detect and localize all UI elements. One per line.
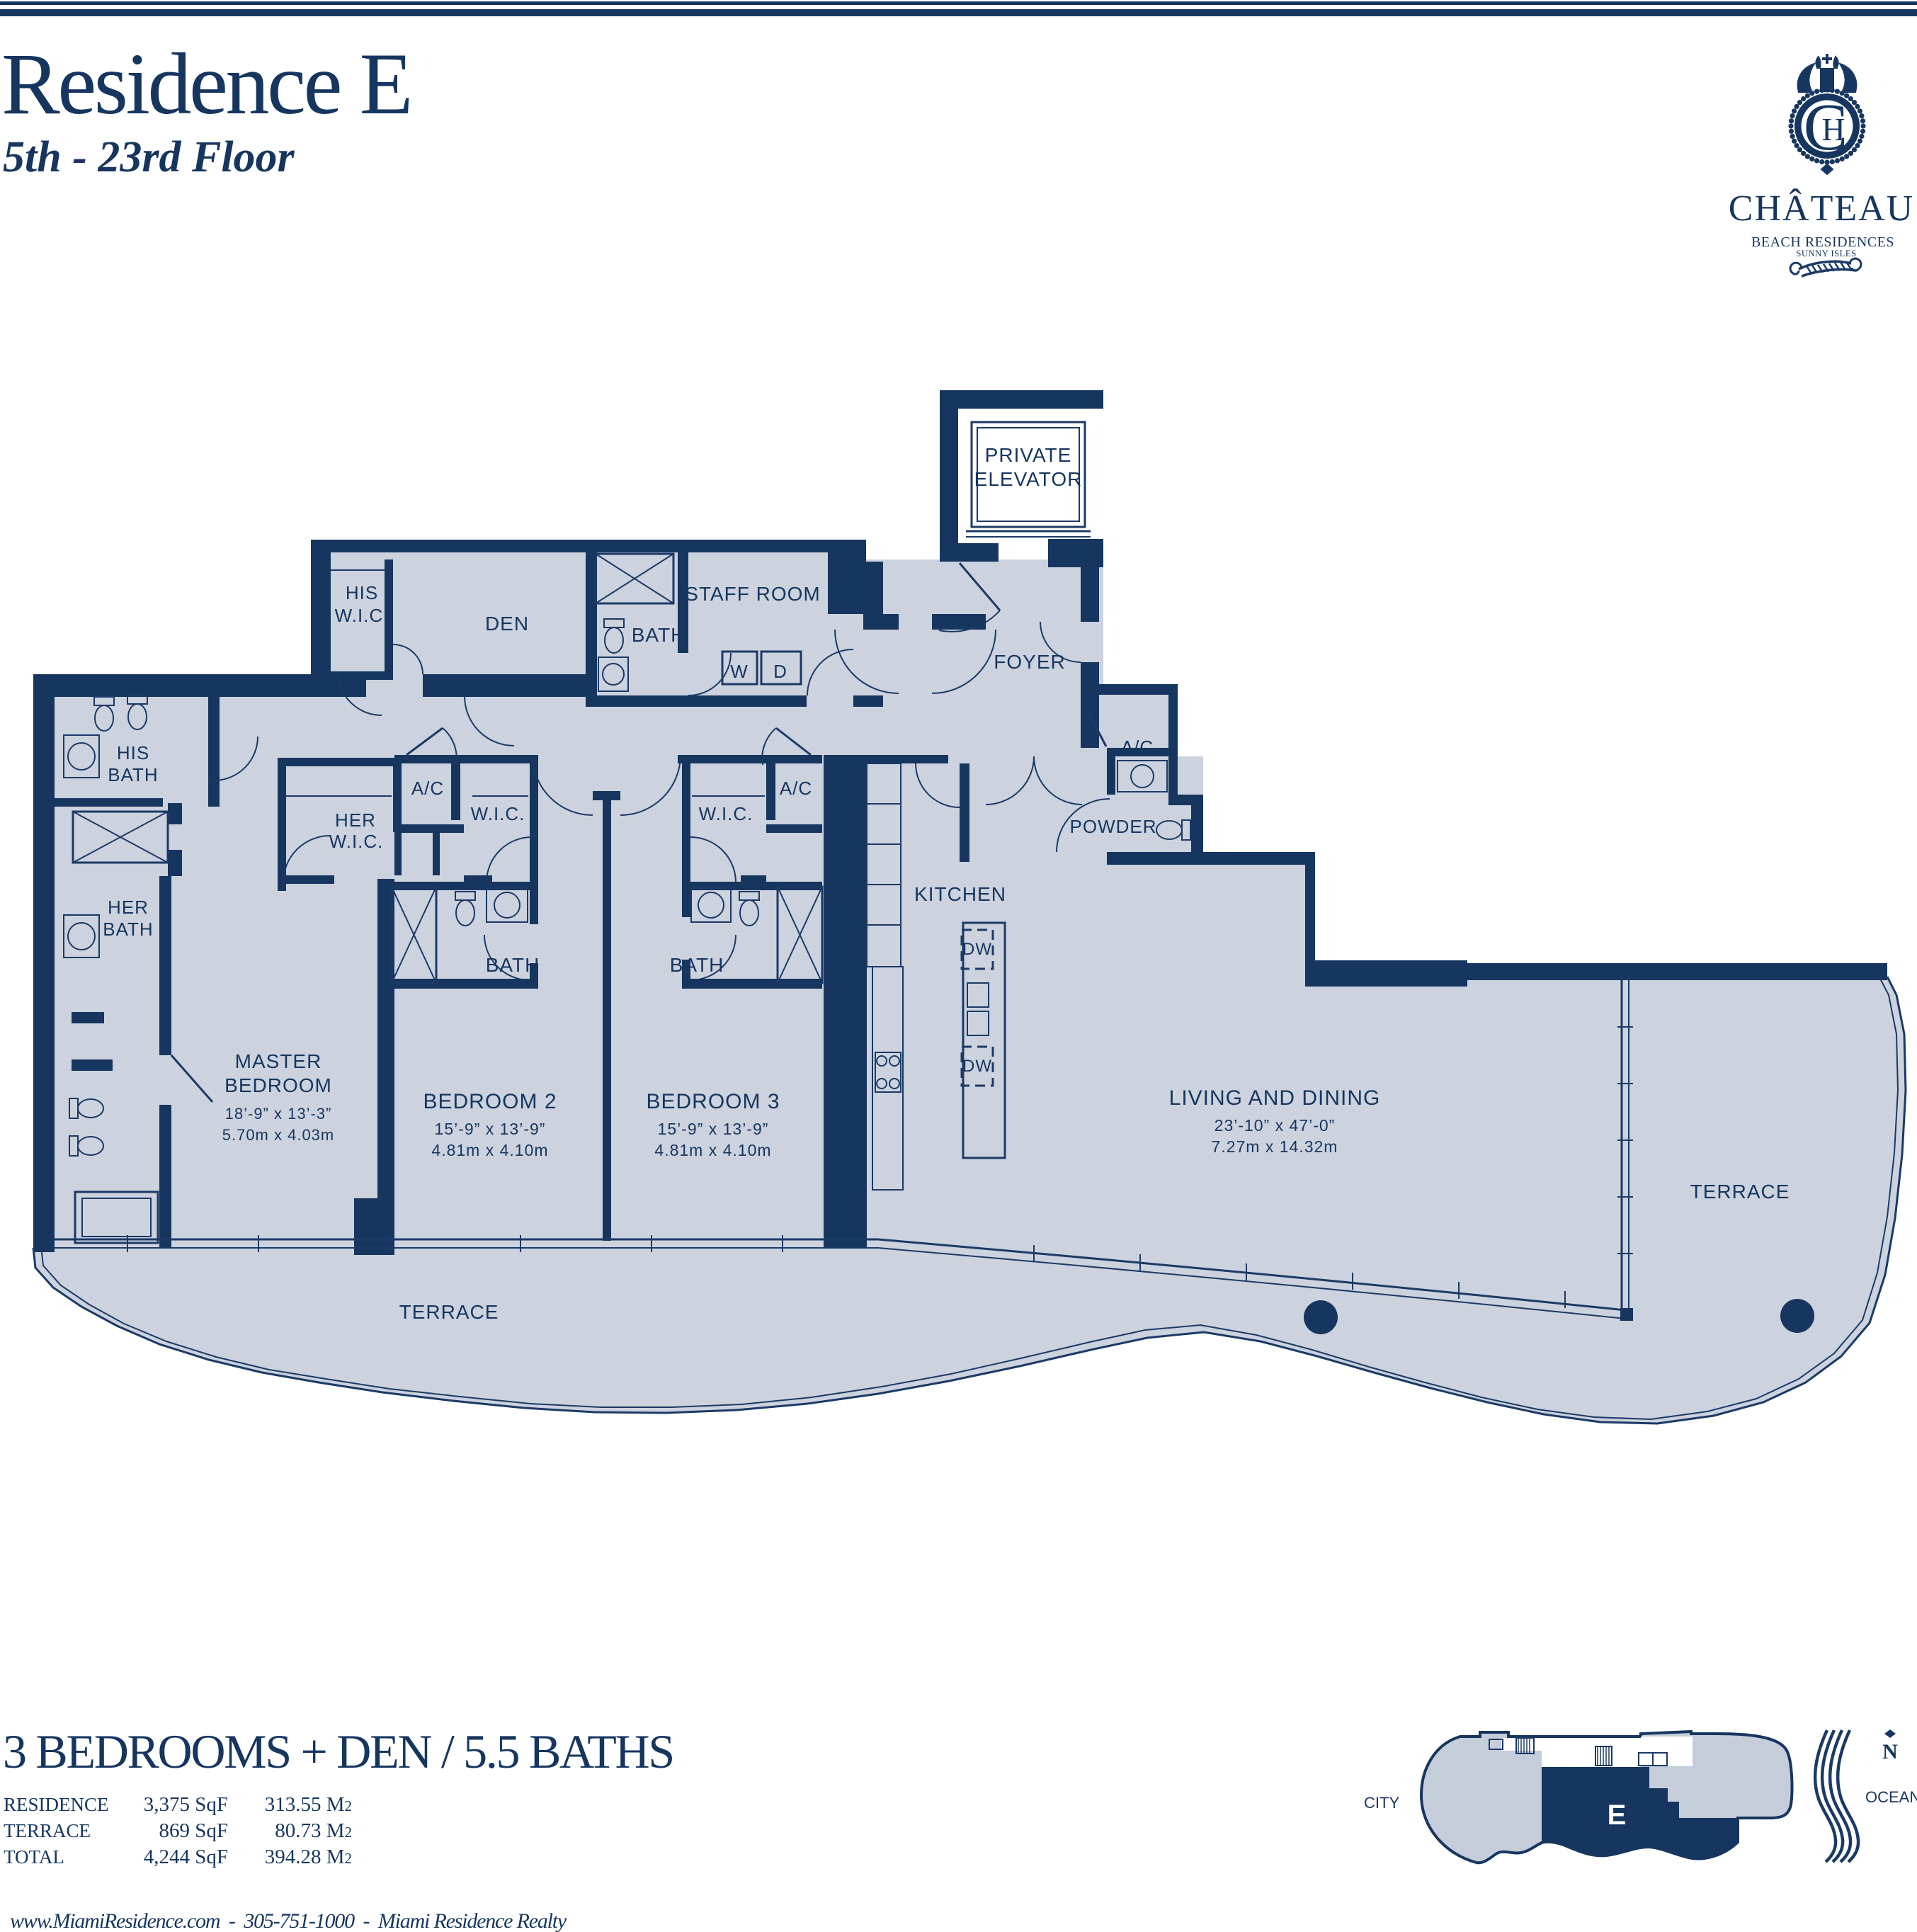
svg-text:W.I.C.: W.I.C.: [335, 605, 389, 626]
svg-text:394.28 M2: 394.28 M2: [265, 1846, 352, 1868]
svg-text:DW: DW: [962, 1057, 992, 1076]
svg-text:A/C: A/C: [780, 778, 812, 799]
svg-text:BEACH RESIDENCES: BEACH RESIDENCES: [1751, 234, 1894, 250]
svg-text:15’-9” x 13’-9”: 15’-9” x 13’-9”: [658, 1120, 769, 1138]
svg-text:PRIVATE: PRIVATE: [985, 444, 1072, 466]
svg-text:18’-9” x 13’-3”: 18’-9” x 13’-3”: [225, 1105, 332, 1123]
svg-text:CHÂTEAU: CHÂTEAU: [1729, 188, 1914, 229]
svg-text:5.70m x 4.03m: 5.70m x 4.03m: [222, 1126, 335, 1144]
svg-text:FOYER: FOYER: [994, 651, 1065, 673]
svg-text:313.55 M2: 313.55 M2: [265, 1793, 352, 1816]
svg-text:POWDER: POWDER: [1070, 816, 1157, 837]
svg-text:5th - 23rd Floor: 5th - 23rd Floor: [3, 133, 295, 181]
svg-text:BEDROOM 3: BEDROOM 3: [646, 1090, 780, 1113]
svg-text:W.I.C.: W.I.C.: [329, 831, 384, 852]
svg-text:Residence E: Residence E: [1, 35, 411, 132]
svg-text:BATH: BATH: [670, 954, 724, 976]
svg-text:N: N: [1882, 1740, 1898, 1763]
svg-text:www.MiamiResidence.com - 305: www.MiamiResidence.com - 305-751-1000 - …: [10, 1909, 567, 1932]
svg-text:A/C: A/C: [1121, 737, 1154, 758]
svg-text:W.I.C.: W.I.C.: [699, 803, 753, 824]
svg-text:TERRACE: TERRACE: [1690, 1181, 1790, 1203]
svg-text:80.73 M2: 80.73 M2: [275, 1819, 352, 1842]
svg-text:7.27m x 14.32m: 7.27m x 14.32m: [1212, 1137, 1338, 1156]
svg-text:OCEAN: OCEAN: [1865, 1788, 1917, 1806]
svg-text:BATH: BATH: [108, 764, 158, 785]
svg-text:TERRACE: TERRACE: [399, 1301, 499, 1323]
svg-text:BATH: BATH: [103, 919, 153, 940]
svg-text:TERRACE: TERRACE: [4, 1820, 91, 1841]
svg-text:4.81m x 4.10m: 4.81m x 4.10m: [654, 1141, 771, 1159]
svg-text:BATH: BATH: [632, 624, 686, 646]
svg-text:STAFF ROOM: STAFF ROOM: [685, 583, 820, 605]
svg-text:4,244 SqF: 4,244 SqF: [144, 1846, 228, 1868]
svg-text:A/C: A/C: [411, 778, 444, 799]
svg-text:4.81m x 4.10m: 4.81m x 4.10m: [431, 1141, 548, 1159]
svg-text:BEDROOM 2: BEDROOM 2: [423, 1090, 557, 1113]
svg-text:DEN: DEN: [485, 613, 529, 635]
svg-text:D: D: [773, 661, 787, 682]
svg-text:3 BEDROOMS + DEN / 5.5 BATHS: 3 BEDROOMS + DEN / 5.5 BATHS: [3, 1724, 673, 1778]
svg-text:23’-10” x 47’-0”: 23’-10” x 47’-0”: [1215, 1116, 1336, 1135]
svg-text:BEDROOM: BEDROOM: [224, 1074, 332, 1096]
svg-text:3,375 SqF: 3,375 SqF: [144, 1793, 228, 1816]
svg-text:ELEVATOR: ELEVATOR: [974, 468, 1083, 490]
svg-text:H: H: [1821, 111, 1845, 147]
svg-text:HIS: HIS: [346, 582, 378, 603]
svg-text:E: E: [1608, 1800, 1627, 1831]
svg-text:HER: HER: [335, 809, 376, 831]
svg-text:LIVING AND DINING: LIVING AND DINING: [1169, 1086, 1381, 1110]
svg-text:KITCHEN: KITCHEN: [914, 883, 1006, 905]
svg-text:DW: DW: [962, 940, 992, 959]
svg-text:W: W: [730, 661, 749, 682]
svg-text:TOTAL: TOTAL: [4, 1846, 64, 1868]
svg-text:RESIDENCE: RESIDENCE: [4, 1794, 109, 1815]
svg-text:BATH: BATH: [486, 954, 540, 976]
svg-text:HIS: HIS: [117, 742, 149, 763]
svg-text:869 SqF: 869 SqF: [159, 1819, 228, 1842]
svg-text:HER: HER: [108, 897, 149, 918]
svg-text:SUNNY ISLES: SUNNY ISLES: [1796, 249, 1856, 258]
svg-text:CITY: CITY: [1364, 1794, 1399, 1812]
svg-text:MASTER: MASTER: [235, 1050, 322, 1072]
svg-text:W.I.C.: W.I.C.: [471, 803, 525, 824]
svg-text:15’-9” x 13’-9”: 15’-9” x 13’-9”: [435, 1120, 546, 1138]
